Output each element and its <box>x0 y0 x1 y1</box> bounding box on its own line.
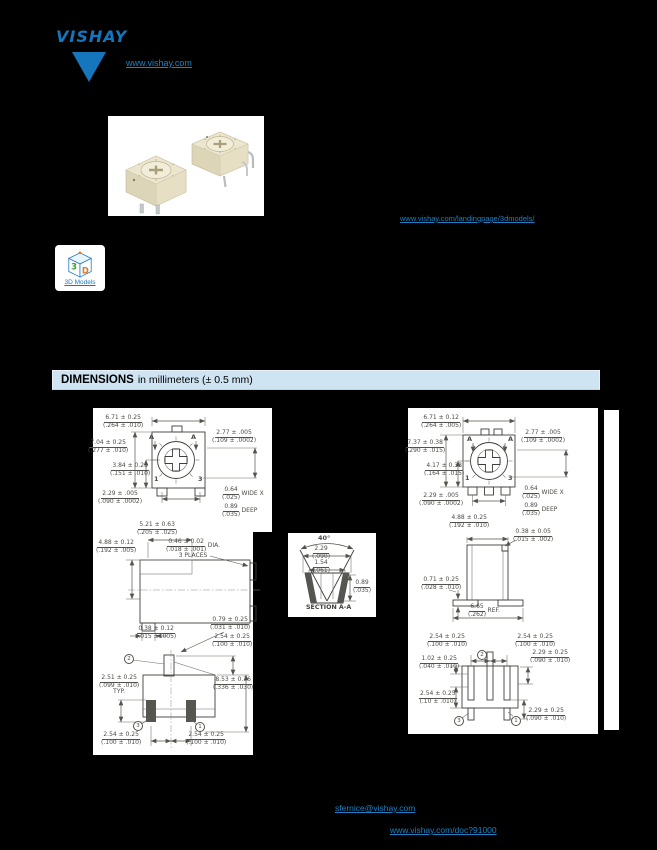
dim-label: 8.53 ± 0.76(.336 ± .030) <box>213 677 253 691</box>
dim-label: 0.89(.035)DEEP <box>222 504 257 518</box>
terminal-callout: 1 <box>511 716 521 726</box>
dim-label: 0.38 ± 0.12(.015 ± .005) <box>136 626 176 640</box>
section-marker: A <box>149 433 154 441</box>
dim-label: 2.54 ± 0.25(.100 ± .010) <box>515 634 555 648</box>
dim-label: 4.17 ± 0.38(.164 ± .015) <box>424 463 464 477</box>
angle-label: 40° <box>318 534 330 542</box>
terminal-callout: 1 <box>195 722 205 732</box>
datasheet-page: { "theme": {"accent_blue":"#1576be","lin… <box>0 0 657 850</box>
dim-label: 6.71 ± 0.12(.264 ± .005) <box>421 415 461 429</box>
dim-label: 2.54 ± 0.25(.100 ± .010) <box>427 634 467 648</box>
dim-label: 0.38 ± 0.05(.015 ± .002) <box>513 529 553 543</box>
dim-label: 2.54 ± 0.25(.100 ± .010) <box>101 732 141 746</box>
terminal-callout: 3 <box>133 721 143 731</box>
dim-label: 5.21 ± 0.63(.205 ± .025) <box>137 522 177 536</box>
dim-label: 0.89(.035)DEEP <box>522 503 557 517</box>
dim-label: 0.46 ± 0.02(.018 ± .001)DIA.3 PLACES <box>166 539 220 560</box>
terminal-callout: 2 <box>124 654 134 664</box>
terminal-number: 3 <box>198 475 203 483</box>
terminal-number: 1 <box>154 475 159 483</box>
terminal-callout: 3 <box>454 716 464 726</box>
dim-label: 2.29 ± 0.25(.090 ± .010) <box>530 650 570 664</box>
dim-label: 0.71 ± 0.25(.028 ± .010) <box>421 577 461 591</box>
section-marker: A <box>191 433 196 441</box>
section-marker: A <box>508 435 513 443</box>
section-marker: A <box>467 435 472 443</box>
dim-label: 4.88 ± 0.12(.192 ± .005) <box>96 540 136 554</box>
terminal-number: 1 <box>465 474 470 482</box>
dim-label: 1.54(.061) <box>312 560 330 574</box>
dim-label: 2.54 ± 0.25(.10 ± .010) <box>419 691 457 705</box>
dim-label: 6.71 ± 0.25(.264 ± .010) <box>103 415 143 429</box>
dim-label: 4.88 ± 0.25(.192 ± .010) <box>449 515 489 529</box>
dim-label: 0.64(.025)WIDE X <box>522 486 564 500</box>
dim-label: 2.54 ± 0.25(.100 ± .010) <box>212 634 252 648</box>
dim-label: 0.79 ± 0.25(.031 ± .010) <box>210 617 250 631</box>
dim-label: 6.65(.262)REF. <box>468 604 500 618</box>
dim-label: 2.29 ± .005(.090 ± .0002) <box>419 493 463 507</box>
section-caption: SECTION A-A <box>306 604 351 611</box>
dim-label: 7.37 ± 0.38(.290 ± .015) <box>405 440 445 454</box>
right-bottom-view <box>450 652 533 720</box>
dim-label: 2.29 ± .005(.090 ± .0002) <box>98 491 142 505</box>
terminal-number: 3 <box>508 474 513 482</box>
dim-label: 0.89(.035) <box>353 580 371 594</box>
dim-label: 7.04 ± 0.25(.277 ± .010) <box>88 440 128 454</box>
dim-label: 2.29 ± 0.25(.090 ± .010) <box>526 708 566 722</box>
terminal-callout: 2 <box>477 650 487 660</box>
dimension-drawings-lineart <box>0 0 657 850</box>
dim-label: 1.02 ± 0.25(.040 ± .010) <box>419 656 459 670</box>
dim-label: 2.77 ± .005(.109 ± .0002) <box>212 430 256 444</box>
dim-label: 0.64(.025)WIDE X <box>222 487 264 501</box>
dim-label: 2.77 ± .005(.109 ± .0002) <box>521 430 565 444</box>
dim-label: 3.84 ± 0.25(.151 ± .010) <box>110 463 150 477</box>
dim-label: 2.54 ± 0.25(.100 ± .010) <box>186 732 226 746</box>
dim-label: 2.51 ± 0.25(.099 ± .010)TYP. <box>99 675 139 696</box>
